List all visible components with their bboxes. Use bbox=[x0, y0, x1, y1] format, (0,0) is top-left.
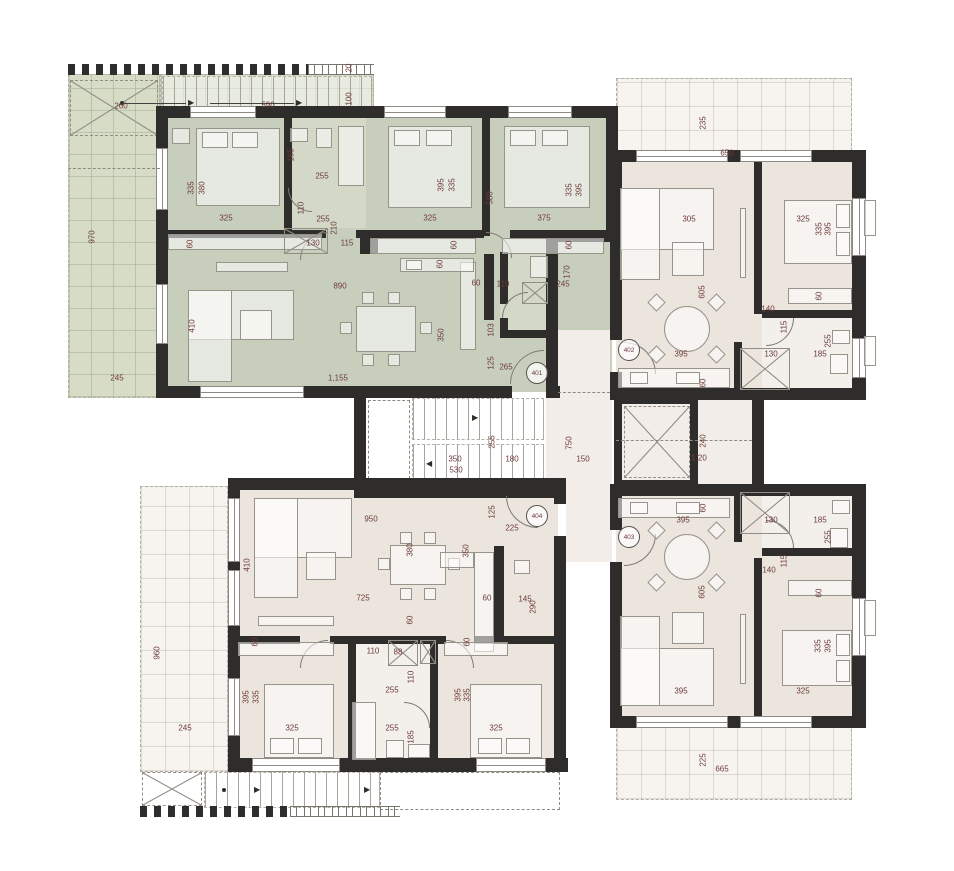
apartment-number-badge: 404 bbox=[526, 505, 548, 527]
chair bbox=[362, 354, 374, 366]
window bbox=[200, 386, 304, 398]
dimension-label: 350 bbox=[437, 328, 446, 341]
kitchen-sink bbox=[630, 372, 648, 384]
dimension-label: 170 bbox=[563, 265, 572, 278]
toilet bbox=[830, 354, 848, 374]
closet bbox=[740, 492, 790, 534]
dimension-label: 970 bbox=[88, 230, 97, 243]
dimension-label: 60 bbox=[251, 638, 260, 647]
dimension-label: 140 bbox=[761, 305, 774, 314]
pillow bbox=[426, 130, 452, 146]
shower bbox=[522, 282, 548, 304]
wall bbox=[762, 310, 866, 318]
dimension-label: 210 bbox=[330, 221, 339, 234]
dimension-label: 890 bbox=[333, 282, 346, 291]
floor-corridor-upper bbox=[558, 330, 610, 396]
dimension-label: 245 bbox=[178, 724, 191, 733]
dimension-label: 665 bbox=[715, 765, 728, 774]
chair bbox=[420, 322, 432, 334]
window bbox=[508, 106, 572, 118]
bathtub bbox=[338, 126, 364, 186]
dimension-label: 245 bbox=[110, 374, 123, 383]
stair-bottom-arrow: ▶ bbox=[254, 786, 260, 794]
dimension-label: 88 bbox=[394, 648, 403, 657]
window bbox=[228, 570, 240, 626]
dimension-label: 255 bbox=[385, 686, 398, 695]
dimension-label: 290 bbox=[529, 600, 538, 613]
window bbox=[636, 716, 728, 728]
window bbox=[740, 716, 812, 728]
reference-line bbox=[558, 392, 610, 393]
dining-table bbox=[390, 545, 446, 585]
dimension-label: 60 bbox=[815, 292, 824, 301]
wall bbox=[500, 330, 558, 338]
kitchen-sink bbox=[630, 502, 648, 514]
tv-panel bbox=[740, 208, 746, 278]
dimension-label: 395 bbox=[454, 688, 463, 701]
floor-plan: ▶ ▶ ▶ ▶ ▶ ◀ bbox=[0, 0, 954, 871]
pillow bbox=[232, 132, 258, 148]
dimension-label: 395 bbox=[674, 350, 687, 359]
dimension-label: 130 bbox=[764, 350, 777, 359]
dimension-label: 165 bbox=[287, 148, 296, 161]
side-table bbox=[672, 242, 704, 276]
dimension-label: 305 bbox=[682, 215, 695, 224]
dimension-label: 395 bbox=[437, 178, 446, 191]
dimension-label: 60 bbox=[186, 240, 195, 249]
bathtub bbox=[352, 702, 376, 760]
stair-bottom-arrow2: ▶ bbox=[364, 786, 370, 794]
reference-line bbox=[616, 440, 752, 441]
dimension-label: 115 bbox=[341, 239, 354, 248]
chair bbox=[388, 292, 400, 304]
dimension-label: 410 bbox=[243, 558, 252, 571]
pillow bbox=[836, 660, 850, 682]
dining-table bbox=[356, 306, 416, 352]
dimension-label: 60 bbox=[699, 379, 708, 388]
dimension-label: 650 bbox=[720, 149, 733, 158]
stairwell-arrow-down: ◀ bbox=[426, 460, 432, 468]
wall bbox=[500, 252, 508, 304]
dining-table-round bbox=[664, 306, 710, 352]
dimension-label: 335 bbox=[252, 690, 261, 703]
terrace-402 bbox=[616, 78, 852, 156]
toilet bbox=[386, 740, 404, 758]
window bbox=[228, 498, 240, 562]
dimension-label: 395 bbox=[824, 222, 833, 235]
dimension-label: 245 bbox=[556, 280, 569, 289]
dimension-label: 255 bbox=[316, 215, 329, 224]
toilet bbox=[530, 256, 548, 278]
sink bbox=[832, 500, 850, 514]
dimension-label: 325 bbox=[219, 214, 232, 223]
dimension-label: 235 bbox=[699, 116, 708, 129]
pillow bbox=[506, 738, 530, 754]
stair-top-ticks-open bbox=[308, 64, 374, 75]
coffee-table bbox=[306, 552, 336, 580]
dimension-label: 225 bbox=[505, 524, 518, 533]
wall bbox=[752, 396, 764, 488]
window bbox=[476, 758, 546, 772]
pillow bbox=[394, 130, 420, 146]
dimension-label: 265 bbox=[499, 363, 512, 372]
pillow bbox=[836, 634, 850, 656]
sofa bbox=[620, 616, 660, 706]
wardrobe bbox=[502, 238, 604, 254]
dimension-label: 110 bbox=[497, 280, 510, 289]
dimension-label: 380 bbox=[198, 181, 207, 194]
wardrobe bbox=[370, 238, 476, 254]
wall bbox=[614, 396, 698, 404]
dimension-label: 335 bbox=[814, 639, 823, 652]
dimension-label: 395 bbox=[575, 183, 584, 196]
dimension-label: 260 bbox=[114, 102, 127, 111]
kitchen-hob bbox=[676, 502, 700, 514]
dimension-label: 185 bbox=[813, 350, 826, 359]
dimension-label: 185 bbox=[407, 730, 416, 743]
dimension-label: 125 bbox=[487, 356, 496, 369]
dimension-label: 395 bbox=[824, 639, 833, 652]
dimension-label: 130 bbox=[764, 516, 777, 525]
toilet bbox=[830, 528, 848, 548]
dimension-label: 325 bbox=[796, 215, 809, 224]
chair bbox=[388, 354, 400, 366]
dimension-label: 335 bbox=[187, 181, 196, 194]
stair-bottom-dot bbox=[222, 788, 226, 792]
tv-panel bbox=[740, 614, 746, 684]
window bbox=[636, 150, 728, 162]
stairwell-arrow-up: ▶ bbox=[472, 414, 478, 422]
ac-ledge bbox=[864, 600, 876, 636]
dimension-label: 350 bbox=[448, 455, 461, 464]
dimension-label: 125 bbox=[488, 505, 497, 518]
dimension-label: 335 bbox=[463, 688, 472, 701]
dimension-label: 1.20 bbox=[691, 454, 707, 463]
dimension-label: 110 bbox=[367, 647, 380, 656]
apartment-number-badge: 403 bbox=[618, 526, 640, 548]
sink bbox=[832, 330, 850, 344]
sofa bbox=[620, 188, 660, 280]
wall bbox=[482, 112, 490, 236]
stair-top-ticks bbox=[68, 64, 308, 75]
ac-ledge bbox=[864, 200, 876, 236]
pillow bbox=[298, 738, 322, 754]
dimension-label: 115 bbox=[780, 321, 789, 334]
chair bbox=[424, 588, 436, 600]
side-table bbox=[672, 612, 704, 644]
window bbox=[252, 758, 340, 772]
sofa bbox=[254, 498, 298, 598]
dimension-label: 960 bbox=[153, 646, 162, 659]
dimension-label: 225 bbox=[699, 753, 708, 766]
window bbox=[190, 106, 256, 118]
dimension-label: 335 bbox=[448, 178, 457, 191]
chair bbox=[378, 558, 390, 570]
sofa bbox=[188, 290, 232, 382]
dimension-label: 110 bbox=[297, 202, 306, 215]
pillow bbox=[510, 130, 536, 146]
guest-wc-shower bbox=[420, 640, 436, 664]
stair-bottom-outline bbox=[380, 772, 560, 810]
dimension-label: 395 bbox=[676, 516, 689, 525]
wall bbox=[690, 396, 698, 488]
chair bbox=[340, 322, 352, 334]
dimension-label: 150 bbox=[576, 455, 589, 464]
dimension-label: 100 bbox=[345, 92, 354, 105]
dimension-label: 605 bbox=[698, 585, 707, 598]
dimension-label: 530 bbox=[449, 466, 462, 475]
guest-wc bbox=[388, 640, 418, 666]
wall bbox=[510, 230, 608, 238]
stair-direction-line bbox=[124, 103, 186, 104]
nightstand bbox=[172, 128, 190, 144]
window bbox=[156, 284, 168, 344]
chair bbox=[424, 532, 436, 544]
dimension-label: 580 bbox=[486, 191, 495, 204]
stair-bottom-ticks-open bbox=[290, 806, 400, 817]
dimension-label: 590 bbox=[261, 101, 274, 110]
dimension-label: 325 bbox=[489, 724, 502, 733]
chair bbox=[400, 532, 412, 544]
coffee-table bbox=[240, 310, 272, 340]
sink bbox=[408, 744, 430, 758]
floor-corridor bbox=[546, 396, 612, 486]
stair-bottom-ticks bbox=[140, 806, 290, 817]
dimension-label: 60 bbox=[699, 504, 708, 513]
dimension-label: 255 bbox=[824, 334, 833, 347]
dimension-label: 60 bbox=[406, 616, 415, 625]
dimension-label: 255 bbox=[315, 172, 328, 181]
pillow bbox=[542, 130, 568, 146]
dimension-label: 335 bbox=[565, 183, 574, 196]
dimension-label: 255 bbox=[488, 435, 497, 448]
apartment-number-badge: 402 bbox=[618, 339, 640, 361]
chair bbox=[362, 292, 374, 304]
wall bbox=[484, 254, 494, 320]
dimension-label: 115 bbox=[780, 555, 789, 568]
dimension-label: 380 bbox=[406, 543, 415, 556]
dimension-label: 110 bbox=[407, 671, 416, 684]
dining-table-round bbox=[664, 534, 710, 580]
dimension-label: 375 bbox=[537, 214, 550, 223]
toilet bbox=[316, 128, 332, 148]
chair bbox=[400, 588, 412, 600]
dimension-label: 185 bbox=[813, 516, 826, 525]
window bbox=[740, 150, 812, 162]
dimension-label: 325 bbox=[796, 687, 809, 696]
dimension-label: 60 bbox=[815, 589, 824, 598]
stair-landing-bottom bbox=[142, 772, 202, 806]
sink bbox=[514, 560, 530, 574]
dimension-label: 325 bbox=[285, 724, 298, 733]
dimension-label: 130 bbox=[306, 239, 319, 248]
dimension-label: 60 bbox=[450, 241, 459, 250]
terrace-403 bbox=[616, 724, 852, 800]
dimension-label: 255 bbox=[385, 724, 398, 733]
sink bbox=[290, 128, 308, 142]
wall bbox=[494, 546, 504, 638]
dimension-label: 335 bbox=[815, 222, 824, 235]
stair-bottom-treads bbox=[204, 772, 380, 808]
floor-corridor-lower bbox=[566, 486, 612, 562]
dimension-label: 103 bbox=[487, 323, 496, 336]
dimension-label: 950 bbox=[364, 515, 377, 524]
window bbox=[228, 678, 240, 736]
pillow bbox=[478, 738, 502, 754]
dimension-label: 60 bbox=[483, 594, 492, 603]
dimension-label: 1,155 bbox=[328, 374, 348, 383]
dimension-label: 325 bbox=[423, 214, 436, 223]
wall bbox=[614, 480, 698, 488]
wall bbox=[762, 548, 866, 556]
pillow bbox=[836, 204, 850, 228]
pillow bbox=[202, 132, 228, 148]
stair-direction-line2 bbox=[210, 103, 294, 104]
tv-sideboard bbox=[258, 616, 334, 626]
window bbox=[156, 148, 168, 210]
dimension-label: 60 bbox=[472, 279, 481, 288]
pillow bbox=[270, 738, 294, 754]
wardrobe bbox=[444, 642, 508, 656]
dimension-label: 725 bbox=[356, 594, 369, 603]
reference-line bbox=[68, 168, 160, 169]
wall bbox=[614, 396, 622, 488]
wall bbox=[354, 386, 366, 496]
dimension-label: 60 bbox=[463, 638, 472, 647]
dimension-label: 180 bbox=[505, 455, 518, 464]
wall bbox=[554, 536, 566, 772]
kitchen-sink bbox=[406, 260, 422, 270]
kitchen-counter bbox=[460, 262, 476, 350]
dimension-label: 20 bbox=[345, 64, 354, 73]
dimension-label: 410 bbox=[188, 319, 197, 332]
dimension-label: 60 bbox=[436, 260, 445, 269]
stairwell-landing bbox=[368, 400, 410, 484]
wall bbox=[754, 558, 762, 720]
elevator-cabin bbox=[624, 406, 690, 478]
dimension-label: 605 bbox=[698, 285, 707, 298]
dimension-label: 255 bbox=[824, 530, 833, 543]
pillow bbox=[836, 232, 850, 256]
dimension-label: 140 bbox=[762, 566, 775, 575]
dimension-label: 350 bbox=[462, 544, 471, 557]
dimension-label: 395 bbox=[242, 690, 251, 703]
dimension-label: 60 bbox=[565, 241, 574, 250]
kitchen-hob bbox=[676, 372, 700, 384]
dimension-label: 240 bbox=[699, 434, 708, 447]
dimension-label: 750 bbox=[565, 436, 574, 449]
ac-ledge bbox=[864, 336, 876, 366]
apartment-number-badge: 401 bbox=[526, 362, 548, 384]
wall bbox=[754, 162, 762, 314]
tv-sideboard bbox=[216, 262, 288, 272]
window bbox=[384, 106, 446, 118]
dimension-label: 395 bbox=[674, 687, 687, 696]
